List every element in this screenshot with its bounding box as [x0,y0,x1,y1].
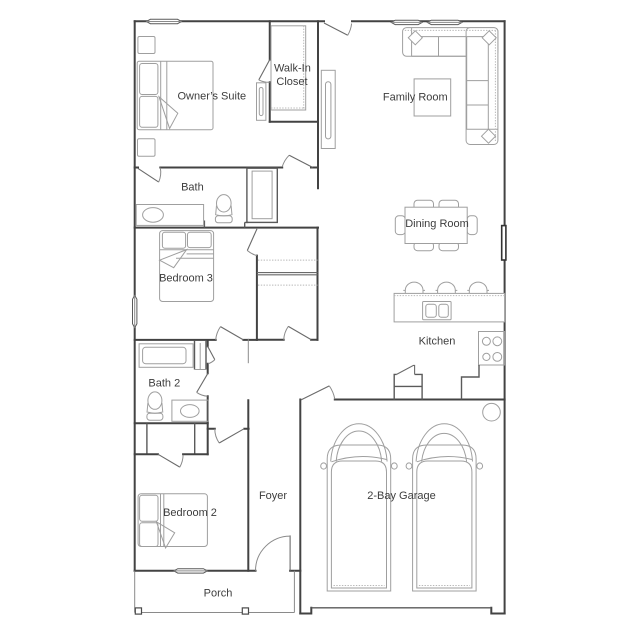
svg-text:Family Room: Family Room [383,91,448,103]
svg-text:Bath: Bath [181,182,204,194]
svg-text:Walk-In: Walk-In [274,63,311,75]
svg-text:Bath 2: Bath 2 [148,377,180,389]
svg-text:Dining Room: Dining Room [405,218,469,230]
svg-text:Bedroom 3: Bedroom 3 [159,273,213,285]
svg-text:Foyer: Foyer [259,490,287,502]
svg-text:Bedroom 2: Bedroom 2 [163,507,217,519]
svg-text:Owner’s Suite: Owner’s Suite [177,91,246,103]
svg-text:Porch: Porch [204,588,233,600]
svg-text:Kitchen: Kitchen [419,335,456,347]
svg-text:2-Bay Garage: 2-Bay Garage [367,490,435,502]
svg-text:Closet: Closet [276,76,307,88]
